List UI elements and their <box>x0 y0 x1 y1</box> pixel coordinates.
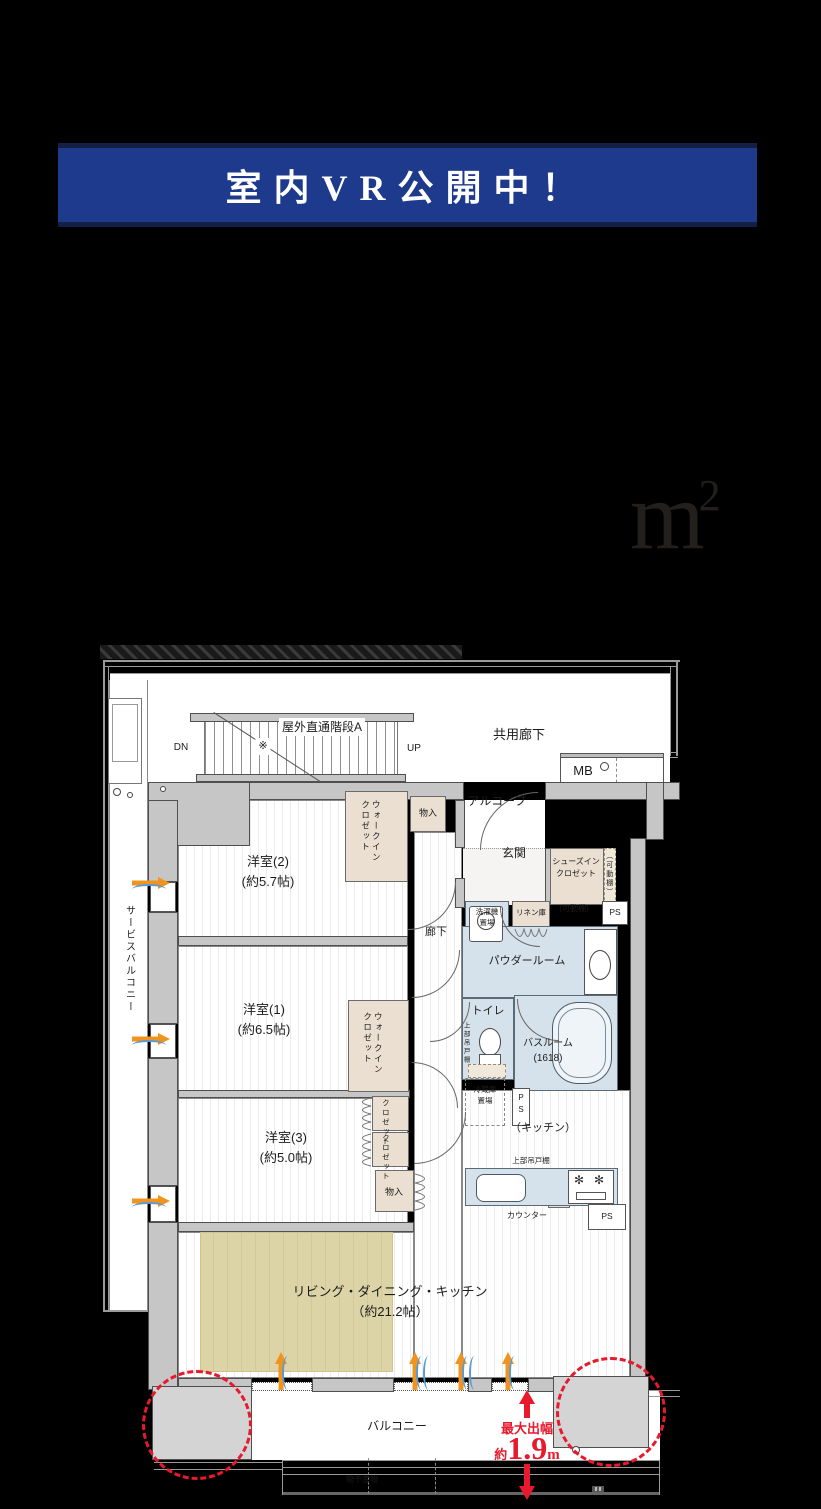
boundary-line <box>676 660 678 756</box>
bedroom3-label: 洋室(3) (約5.0帖) <box>260 1128 313 1167</box>
wall <box>312 1378 394 1392</box>
page: 室内VR公開中！ m2 <box>0 0 821 1509</box>
closet1-label: クロゼット <box>381 1099 390 1132</box>
wall <box>455 878 465 908</box>
toilet-label: トイレ <box>472 1003 505 1020</box>
laundry-label: 洗濯機 置場 <box>476 906 499 929</box>
railing-base <box>282 1492 660 1495</box>
powder-room-label: パウダールーム <box>489 953 566 970</box>
boundary-line <box>103 1310 149 1312</box>
service-equipment-inner <box>112 704 138 762</box>
wave-icon <box>132 884 166 895</box>
accordion-door-icon <box>352 1097 372 1131</box>
wall <box>630 838 646 1392</box>
bedroom1-label: 洋室(1) (約6.5帖) <box>238 1000 291 1039</box>
counter-label: カウンター <box>507 1210 547 1222</box>
area-unit-exponent: 2 <box>699 471 721 520</box>
storage3-label: 物入 <box>385 1186 403 1200</box>
drain-icon <box>113 788 121 796</box>
wall <box>148 912 178 1024</box>
railing-line <box>282 1467 660 1468</box>
wic1-label: ウォークイン クロゼット <box>362 1012 383 1092</box>
common-corridor-label: 共用廊下 <box>493 725 545 745</box>
railing-line <box>659 1460 660 1495</box>
airflow-icon <box>128 1186 170 1216</box>
kitchen-label: （キッチン） <box>510 1120 576 1137</box>
burner-icon: ✻ <box>594 1174 604 1186</box>
airflow-icon <box>128 868 170 898</box>
red-arrow-shaft <box>524 1402 530 1418</box>
shoes-closet-label: シューズイン クロゼット <box>552 856 600 880</box>
mb-label: MB <box>573 761 593 781</box>
stairs-bottom-wall <box>196 774 406 782</box>
drain-icon <box>127 792 133 798</box>
airflow-icon <box>446 1352 476 1394</box>
wall <box>178 1222 414 1232</box>
boundary-line <box>670 666 671 756</box>
pillar-highlight-circle <box>142 1370 252 1480</box>
max-depth-prefix: 約 <box>494 1444 507 1463</box>
ps1-label: PS <box>609 906 620 919</box>
accordion-door-icon <box>414 1173 436 1211</box>
accordion-door-icon <box>352 1133 372 1167</box>
vr-banner[interactable]: 室内VR公開中！ <box>58 143 757 227</box>
boundary-line <box>103 666 678 667</box>
fridge-label: 冷蔵庫 置場 <box>474 1084 497 1107</box>
area-unit-base: m <box>630 462 705 569</box>
closet2-label: クロゼット <box>381 1134 390 1167</box>
red-arrow-shaft <box>524 1464 530 1486</box>
mb-meter-icon <box>600 762 609 771</box>
wall <box>455 800 465 848</box>
wall <box>148 1058 178 1186</box>
ps2-label: P S <box>518 1092 523 1116</box>
linen-label: リネン庫 <box>516 907 546 918</box>
airflow-icon <box>400 1352 430 1394</box>
railing-divider <box>435 1458 436 1494</box>
vr-banner-text: 室内VR公開中！ <box>226 159 590 211</box>
wave-icon <box>132 1202 166 1213</box>
wave-icon <box>469 1356 480 1390</box>
upper-cabinet-v-label: 上部吊戸棚 <box>461 1022 469 1068</box>
shelf-v-label: （可動棚） <box>604 852 613 904</box>
closet2 <box>372 1132 409 1167</box>
shelf-h-label: (可動棚) <box>559 903 588 915</box>
wave-icon <box>423 1356 434 1390</box>
storage-top-label: 物入 <box>419 807 437 821</box>
ps3-label: PS <box>601 1210 612 1223</box>
upper-cabinet-h-label: 上部吊戸棚 <box>512 1155 550 1166</box>
entrance-label: 玄関 <box>502 844 526 862</box>
closet1 <box>372 1096 409 1131</box>
red-arrow-down-icon <box>519 1486 535 1500</box>
wave-icon <box>132 1040 166 1051</box>
accordion-door-icon <box>514 928 548 946</box>
railing-line <box>282 1474 660 1475</box>
up-label: UP <box>407 741 421 756</box>
railing-line <box>282 1460 283 1495</box>
railing-tick <box>592 1486 604 1492</box>
area-unit: m2 <box>630 468 721 564</box>
toilet-bowl <box>479 1028 501 1056</box>
bedroom2-label: 洋室(2) (約5.7帖) <box>242 852 295 891</box>
alcove-label: アルコーブ <box>468 792 527 810</box>
wic2-label: ウォークイン クロゼット <box>360 800 381 880</box>
max-depth-number: 1.9 <box>507 1432 547 1464</box>
ldk-label: リビング・ダイニング・キッチン （約21.2帖） <box>292 1282 487 1321</box>
wall <box>178 936 408 946</box>
pillar-highlight-circle <box>556 1357 666 1467</box>
stairs-label: 屋外直通階段A <box>279 718 365 736</box>
wave-icon <box>509 1356 520 1390</box>
airflow-icon <box>493 1352 523 1394</box>
toilet-mat <box>468 1064 506 1078</box>
drying-fitting-label: 物干金物 <box>346 1474 378 1486</box>
corridor-label: 廊下 <box>425 924 447 941</box>
wall <box>148 1222 178 1390</box>
kitchen-sink <box>476 1174 526 1202</box>
boundary-line <box>103 660 105 1312</box>
max-depth-value: 約1.9m <box>494 1432 560 1464</box>
stairs-mark: ※ <box>255 738 270 755</box>
wave-icon <box>282 1356 293 1390</box>
site-boundary-hatch <box>100 645 462 659</box>
washbasin-bowl <box>589 950 611 980</box>
balcony-label: バルコニー <box>367 1417 427 1435</box>
dn-label: DN <box>174 740 188 755</box>
bathroom-label: バスルーム (1618) <box>523 1036 573 1066</box>
max-depth-unit: m <box>547 1447 560 1464</box>
service-balcony-label: サービスバルコニー <box>122 905 135 1060</box>
boundary-line <box>103 660 680 662</box>
wall <box>646 782 664 840</box>
airflow-icon <box>266 1352 296 1394</box>
grill <box>576 1192 606 1200</box>
burner-icon: ✻ <box>574 1174 584 1186</box>
wall-vent-icon <box>160 786 166 792</box>
